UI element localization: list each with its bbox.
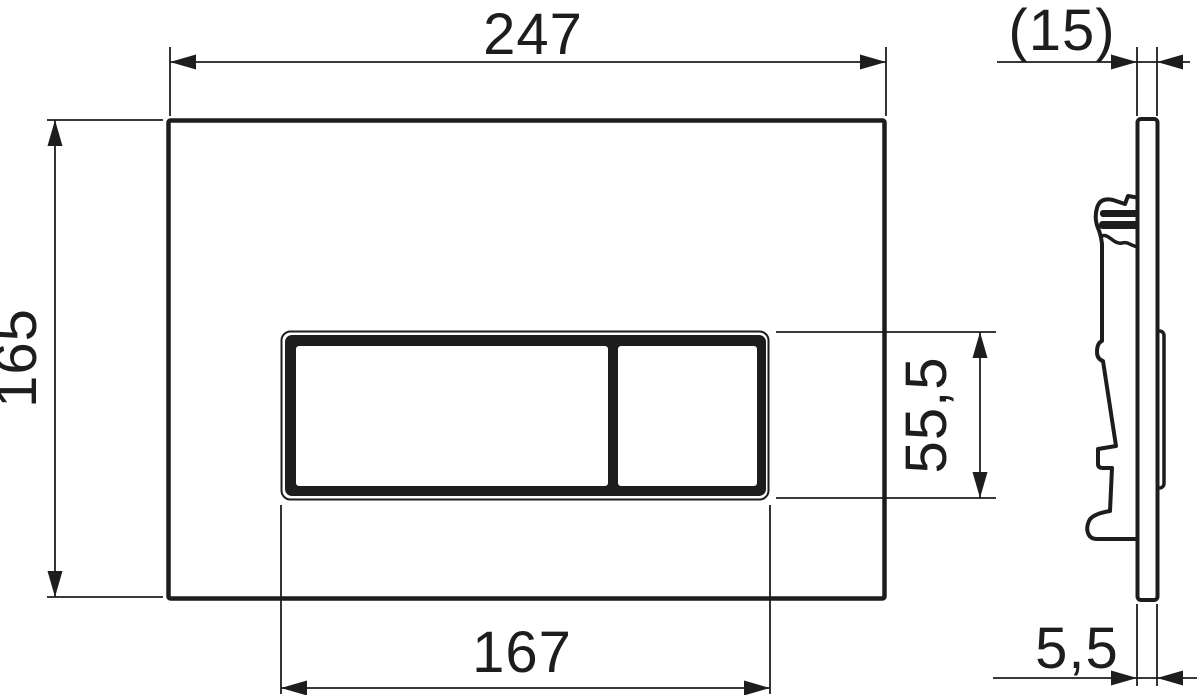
dim-label-plate-thickness: 5,5 xyxy=(1035,616,1119,681)
dim-label-button-panel-height: 55,5 xyxy=(894,357,959,474)
technical-drawing-page: 247 165 167 55,5 xyxy=(0,0,1200,695)
flush-plate-drawing: 247 165 167 55,5 xyxy=(0,0,1200,695)
arrowhead-bottom xyxy=(973,472,988,498)
arrowhead-right xyxy=(744,681,770,695)
arrowhead-top xyxy=(48,120,63,146)
side-mounting-bracket-profile xyxy=(1087,196,1140,539)
arrowhead-inward-right xyxy=(1157,671,1183,686)
clip-slot-lower xyxy=(1099,221,1140,229)
dim-overall-width: 247 xyxy=(170,2,886,116)
dim-overall-height: 165 xyxy=(0,120,163,597)
side-view xyxy=(1087,119,1164,600)
arrowhead-top xyxy=(973,332,988,358)
arrowhead-bottom xyxy=(48,571,63,597)
dim-label-overall-height: 165 xyxy=(0,308,49,408)
side-plate-profile xyxy=(1138,119,1158,600)
dim-label-overall-depth: (15) xyxy=(1008,0,1115,63)
arrowhead-left xyxy=(281,681,307,695)
arrowhead-right xyxy=(860,55,886,70)
front-view xyxy=(169,121,885,599)
arrowhead-left xyxy=(170,55,196,70)
arrowhead-inward-right xyxy=(1157,55,1183,70)
button-right-cavity xyxy=(618,346,757,486)
dim-plate-thickness: 5,5 xyxy=(993,604,1197,686)
dim-label-overall-width: 247 xyxy=(483,2,583,67)
clip-slot-upper xyxy=(1100,210,1140,217)
dim-overall-depth: (15) xyxy=(997,0,1190,116)
button-left-cavity xyxy=(296,346,608,486)
dim-label-button-panel-width: 167 xyxy=(472,620,572,685)
